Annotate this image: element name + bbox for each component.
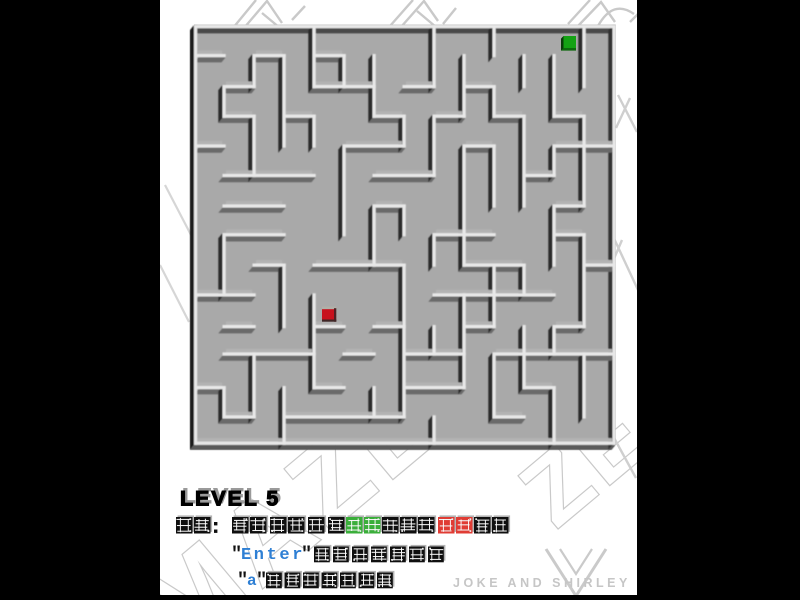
svg-text:JOKE AND SHIRLEY: JOKE AND SHIRLEY	[453, 576, 631, 590]
svg-text:LEVEL 5: LEVEL 5	[180, 487, 280, 511]
svg-text:Enter: Enter	[241, 546, 305, 565]
svg-text:": "	[256, 570, 267, 591]
svg-text:": "	[301, 544, 312, 565]
